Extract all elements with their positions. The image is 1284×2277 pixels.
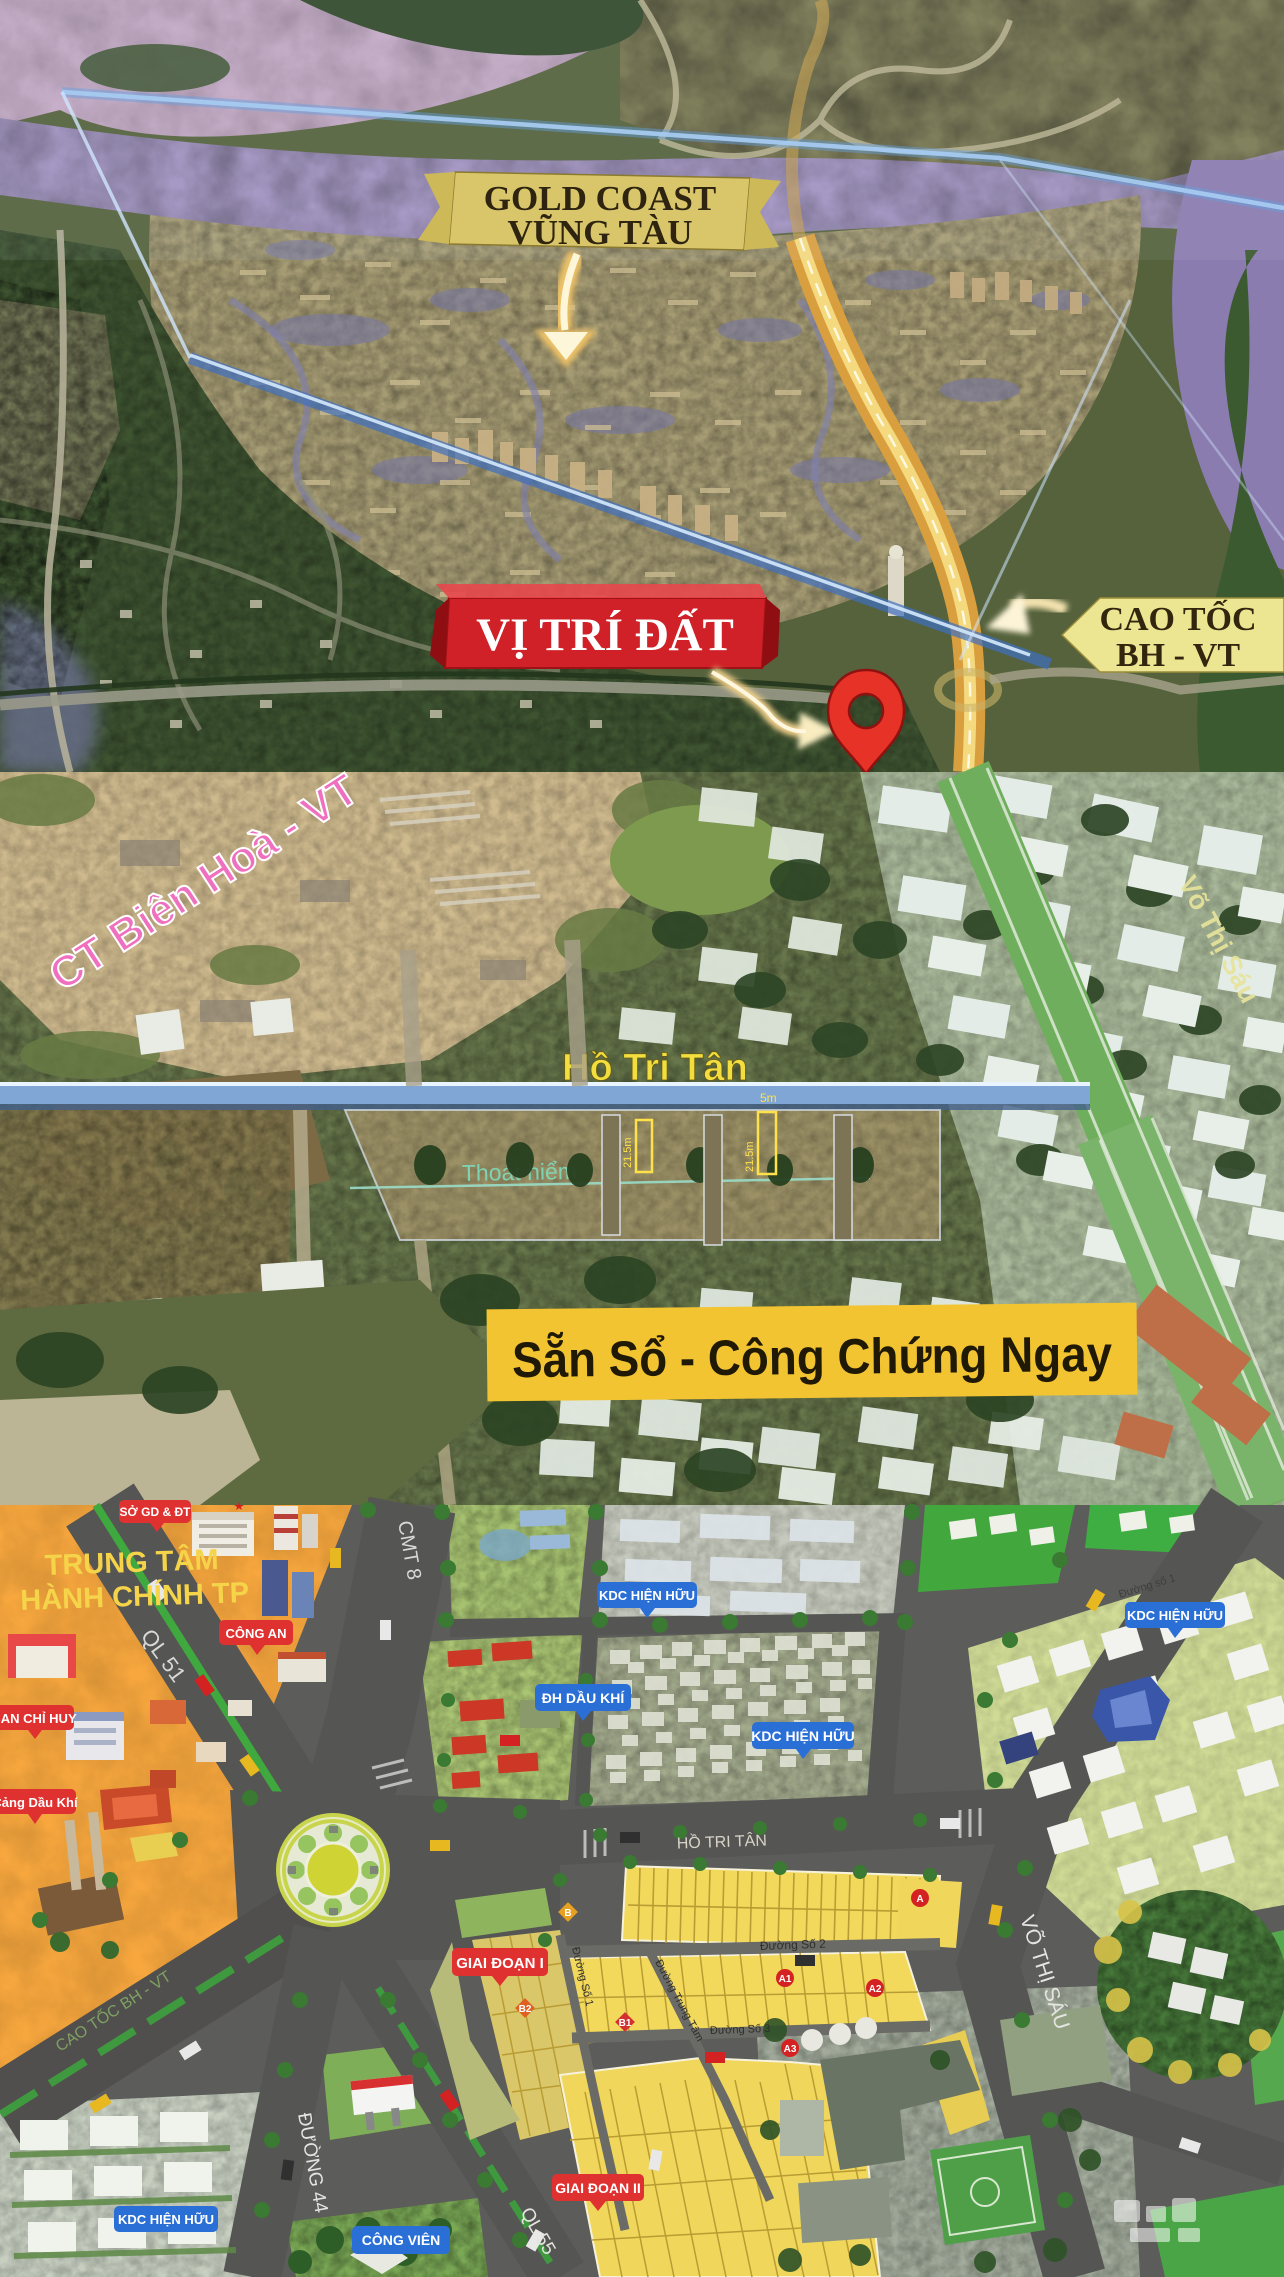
svg-text:B2: B2	[519, 2004, 532, 2015]
svg-text:B: B	[564, 1908, 571, 1919]
svg-text:KDC HIỆN HỮU: KDC HIỆN HỮU	[118, 2212, 214, 2227]
svg-text:BH - VT: BH - VT	[1116, 637, 1240, 674]
svg-text:A2: A2	[869, 1984, 882, 1995]
svg-text:Hồ Tri Tân: Hồ Tri Tân	[562, 1047, 748, 1089]
svg-text:B1: B1	[619, 2018, 632, 2029]
svg-text:GIAI ĐOẠN II: GIAI ĐOẠN II	[555, 2180, 641, 2196]
svg-text:GIAI ĐOẠN I: GIAI ĐOẠN I	[456, 1955, 544, 1972]
svg-text:A1: A1	[779, 1974, 792, 1985]
svg-text:21.5m: 21.5m	[744, 1141, 756, 1172]
svg-text:Đường Số 2: Đường Số 2	[760, 1937, 827, 1953]
svg-text:KDC HIỆN HỮU: KDC HIỆN HỮU	[1127, 1608, 1223, 1623]
svg-text:SỞ GD & ĐT: SỞ GD & ĐT	[120, 1504, 192, 1519]
svg-text:CÔNG AN: CÔNG AN	[226, 1626, 287, 1641]
svg-text:A: A	[916, 1894, 923, 1905]
svg-text:ĐH DẦU KHÍ: ĐH DẦU KHÍ	[542, 1690, 626, 1706]
svg-text:5m: 5m	[760, 1091, 777, 1105]
svg-text:VŨNG TÀU: VŨNG TÀU	[507, 212, 692, 252]
svg-text:Cảng Dầu Khí: Cảng Dầu Khí	[0, 1795, 78, 1810]
svg-text:KDC HIỆN HỮU: KDC HIỆN HỮU	[599, 1588, 695, 1603]
svg-text:CÔNG VIÊN: CÔNG VIÊN	[362, 2231, 441, 2248]
svg-text:BAN CHỈ HUY: BAN CHỈ HUY	[0, 1711, 77, 1726]
svg-text:A3: A3	[784, 2044, 797, 2055]
svg-text:KDC HIỆN HỮU: KDC HIỆN HỮU	[751, 1727, 854, 1744]
svg-text:Đường Số 3: Đường Số 3	[710, 2023, 771, 2037]
svg-text:Sẵn Sổ - Công Chứng Ngay: Sẵn Sổ - Công Chứng Ngay	[512, 1325, 1113, 1388]
svg-text:21.5m: 21.5m	[622, 1137, 634, 1168]
svg-text:CAO TỐC: CAO TỐC	[1099, 599, 1256, 638]
svg-text:VỊ TRÍ ĐẤT: VỊ TRÍ ĐẤT	[476, 608, 734, 661]
